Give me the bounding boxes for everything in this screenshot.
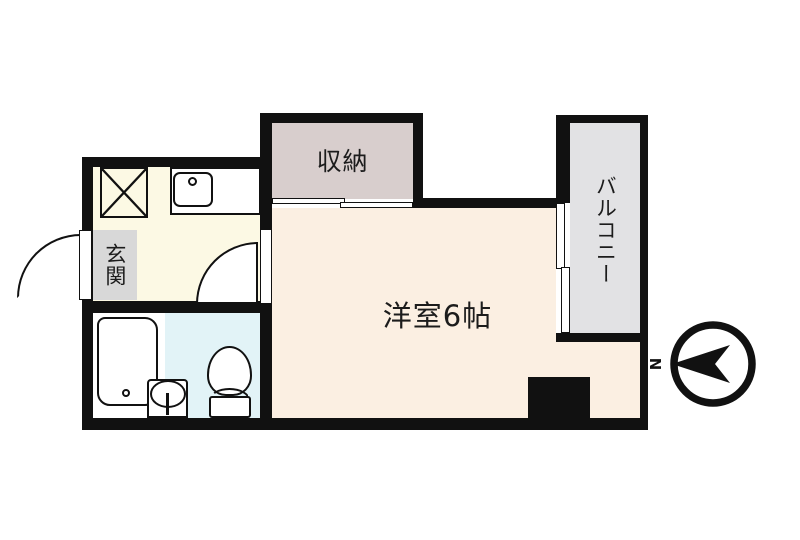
balcony-label: バルコニー xyxy=(570,130,640,330)
wall-main-room-top xyxy=(413,198,564,208)
wall-kitchen-top xyxy=(82,157,272,167)
front-door-leaf xyxy=(79,230,92,300)
north-compass-icon: N xyxy=(645,316,763,412)
faucet-hole-icon xyxy=(188,177,197,186)
floorplan: 収納 バルコニー 玄関 洋室6帖 N xyxy=(0,0,800,540)
closet-label: 収納 xyxy=(272,123,413,199)
compass-north-letter: N xyxy=(647,358,665,371)
wall-balcony-top xyxy=(556,115,648,123)
pillar xyxy=(528,377,590,418)
wall-balcony-bottom xyxy=(556,333,648,342)
closet-sliding-door-right xyxy=(340,202,413,208)
bathtub-drain-icon xyxy=(122,389,130,397)
balcony-window-pane-lower xyxy=(561,267,570,333)
front-door-swing-arc xyxy=(17,234,81,298)
x-mark-icon xyxy=(102,169,146,216)
wall-closet-right xyxy=(413,113,423,208)
main-room-label: 洋室6帖 xyxy=(340,298,535,336)
x-marked-square xyxy=(100,167,148,218)
entrance-label: 玄関 xyxy=(92,232,137,298)
wall-bottom xyxy=(82,418,648,430)
washbasin-faucet-icon xyxy=(166,393,169,415)
balcony-window-pane-upper xyxy=(556,203,565,269)
wall-closet-top xyxy=(262,113,423,123)
kitchen-room-passage xyxy=(260,230,272,303)
compass-arrow xyxy=(672,345,730,383)
